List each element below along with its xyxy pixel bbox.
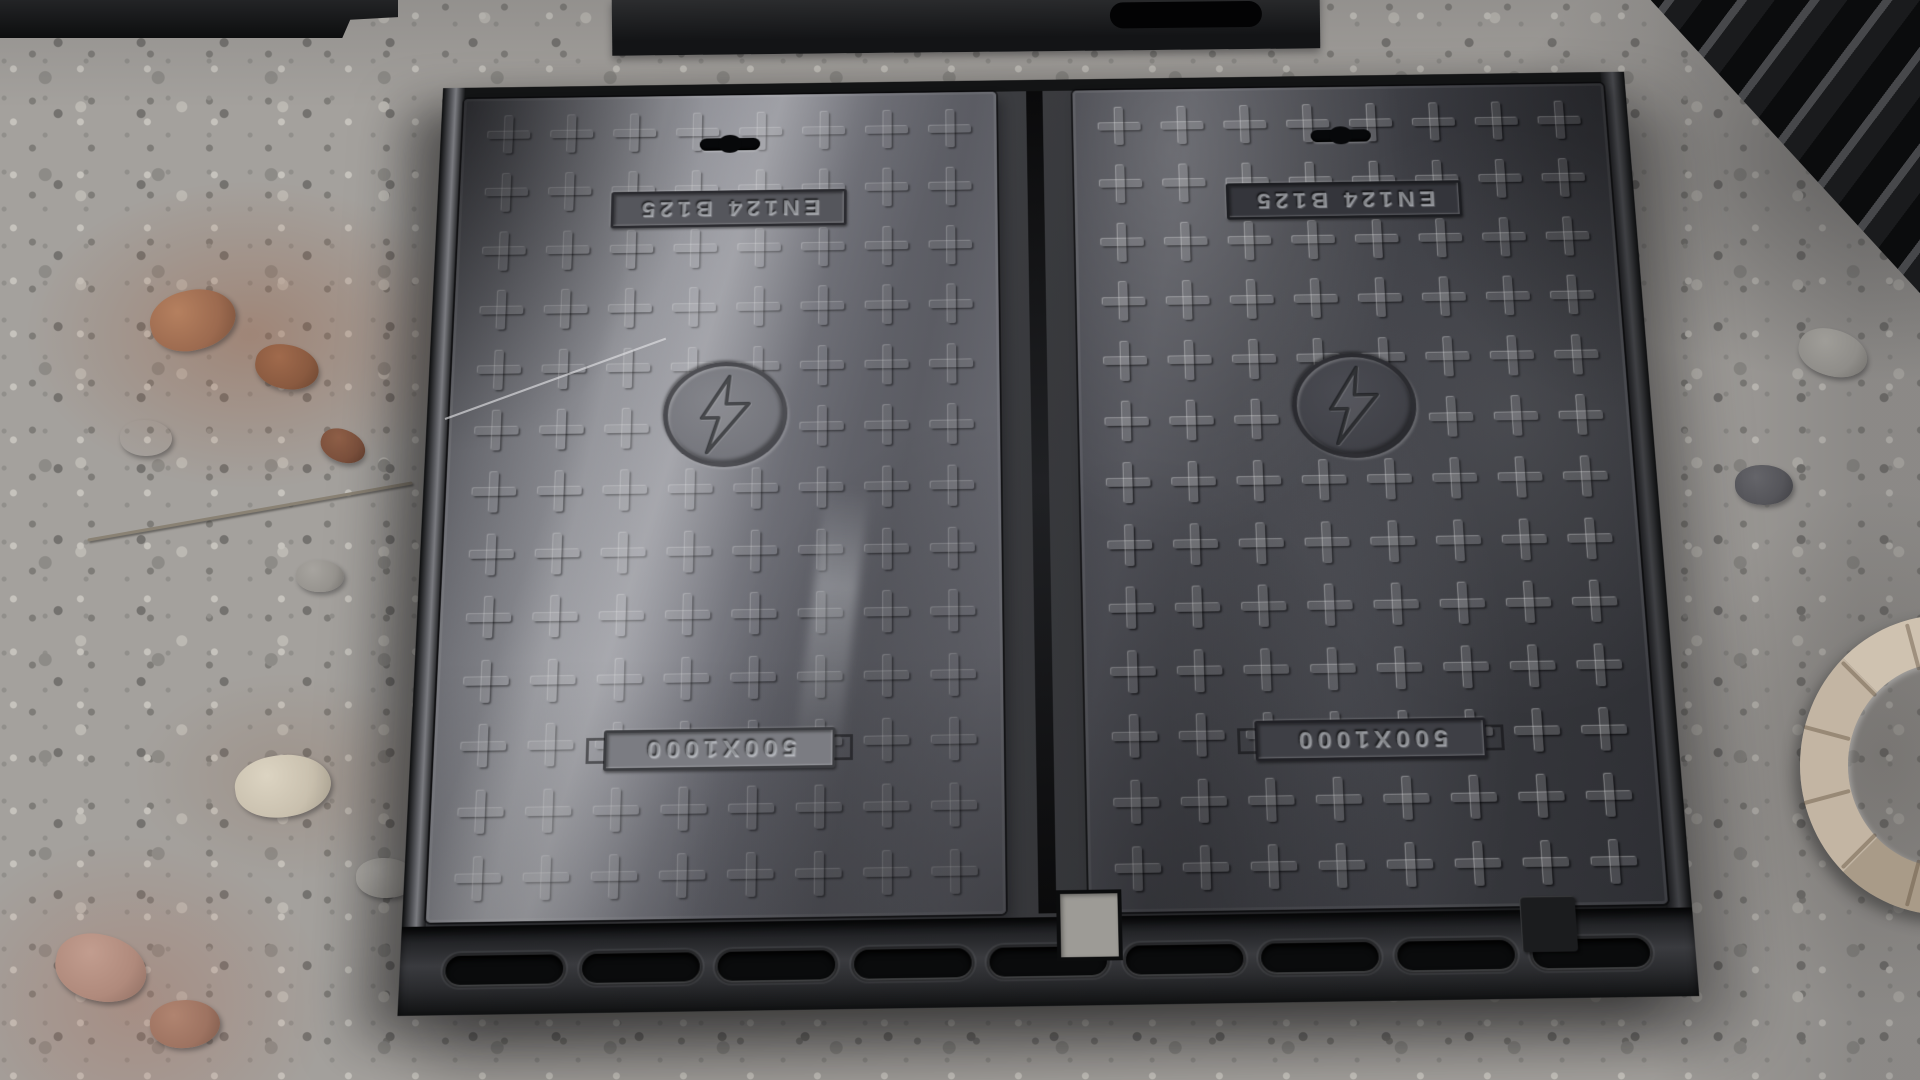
embossed-cross (790, 335, 855, 396)
lightning-bolt-icon (1321, 365, 1387, 445)
embossed-cross (1425, 509, 1495, 572)
embossed-cross (716, 841, 785, 909)
embossed-cross (1160, 451, 1227, 514)
embossed-cross (1365, 636, 1435, 701)
embossed-cross (666, 103, 730, 161)
embossed-cross (921, 772, 989, 839)
embossed-cross (1150, 97, 1215, 155)
embossed-cross (521, 585, 590, 649)
embossed-cross (1479, 325, 1548, 386)
embossed-cross (654, 583, 722, 647)
embossed-cross (919, 274, 984, 334)
embossed-cross (1169, 768, 1239, 835)
embossed-cross (471, 221, 537, 281)
embossed-cross (1217, 211, 1283, 271)
embossed-cross (1152, 154, 1217, 213)
embossed-cross (1418, 386, 1487, 448)
embossed-cross (473, 163, 539, 222)
frame-slot (1125, 944, 1243, 975)
embossed-cross (656, 520, 723, 584)
embossed-cross (1502, 698, 1574, 764)
embossed-cross (1443, 830, 1515, 898)
embossed-cross (595, 338, 661, 399)
manhole-cover-right: EN124 B125 500X1000 (1072, 83, 1668, 912)
embossed-cross (856, 158, 920, 217)
embossed-cross (919, 100, 982, 158)
gray-stone (296, 560, 344, 592)
embossed-cross (856, 101, 919, 159)
embossed-cross (854, 643, 921, 708)
embossed-cross (920, 454, 986, 517)
embossed-cross (1535, 206, 1603, 265)
embossed-cross (1228, 512, 1296, 576)
embossed-cross (1531, 149, 1599, 208)
embossed-cross (854, 580, 921, 644)
embossed-cross (1167, 703, 1236, 769)
embossed-cross (587, 584, 655, 648)
embossed-cross (1486, 446, 1556, 509)
embossed-cross (468, 280, 535, 340)
embossed-cross (855, 216, 919, 276)
embossed-cross (920, 393, 986, 455)
embossed-cross (454, 586, 523, 651)
embossed-cross (445, 779, 516, 846)
embossed-cross (854, 707, 922, 773)
embossed-cross (1307, 832, 1378, 900)
embossed-cross (593, 398, 660, 460)
embossed-cross (663, 219, 728, 279)
embossed-cross (1280, 210, 1346, 270)
embossed-cross (451, 649, 521, 714)
frame-slot (445, 954, 564, 985)
embossed-cross (1574, 762, 1646, 829)
embossed-cross (523, 522, 591, 586)
embossed-cross (448, 713, 518, 779)
embossed-cross (597, 278, 663, 338)
embossed-cross (1464, 92, 1531, 150)
embossed-cross (1166, 639, 1235, 704)
embossed-cross (729, 103, 793, 161)
embossed-cross (581, 777, 651, 844)
embossed-cross (1223, 389, 1290, 451)
embossed-cross (1153, 212, 1219, 272)
frame-slot (581, 952, 699, 983)
embossed-cross (533, 279, 599, 339)
embossed-cross (1239, 833, 1310, 901)
embossed-cross (1157, 330, 1224, 391)
size-plate-text: 500X1000 (1293, 726, 1448, 752)
embossed-cross (1359, 510, 1428, 574)
embossed-cross (717, 775, 786, 842)
embossed-cross (460, 461, 528, 524)
embossed-cross (1221, 329, 1288, 390)
embossed-cross (535, 220, 601, 280)
embossed-cross (589, 521, 657, 585)
embossed-cross (1372, 765, 1443, 832)
embossed-cross (1237, 767, 1307, 834)
lightning-bolt-icon (693, 374, 756, 454)
embossed-cross (1375, 831, 1447, 899)
embossed-cross (1347, 268, 1414, 328)
embossed-cross (723, 457, 789, 520)
hose-ring (1800, 615, 1920, 915)
embossed-cross (457, 523, 526, 587)
embossed-cross (921, 706, 989, 772)
embossed-cross (785, 774, 853, 841)
embossed-cross (920, 516, 986, 580)
embossed-cross (727, 218, 792, 278)
embossed-cross (653, 646, 721, 711)
embossed-cross (855, 275, 919, 335)
embossed-cross (791, 217, 855, 277)
embossed-cross (1296, 573, 1365, 637)
embossed-cross (1304, 766, 1375, 833)
embossed-cross (1338, 94, 1404, 152)
embossed-cross (1578, 828, 1651, 896)
frame-slot (1261, 942, 1380, 973)
size-plate-text: 500X1000 (641, 736, 796, 762)
embossed-cross (662, 277, 728, 337)
embossed-cross (1498, 634, 1569, 699)
embossed-cross (791, 276, 856, 336)
embossed-cross (1551, 445, 1621, 508)
embossed-cross (528, 399, 595, 461)
embossed-cross (921, 838, 990, 906)
embossed-cross (476, 106, 542, 164)
embossed-cross (1283, 269, 1350, 329)
embossed-cross (1356, 448, 1425, 511)
embossed-cross (539, 105, 604, 163)
frame-notch (1056, 889, 1123, 961)
lifting-key-slot (699, 138, 760, 151)
embossed-cross (1094, 391, 1161, 453)
manhole-cover-left: EN124 B125 500X1000 (426, 92, 1006, 923)
embossed-cross (1293, 511, 1362, 575)
embossed-cross (1162, 513, 1230, 577)
embossed-cross (1213, 96, 1278, 154)
embossed-cross (1439, 764, 1511, 831)
embossed-cross (1164, 575, 1232, 639)
embossed-cross (1428, 571, 1498, 635)
embossed-cross (792, 102, 855, 160)
embossed-cross (1095, 452, 1162, 515)
embossed-cross (855, 394, 920, 456)
embossed-cross (1543, 324, 1612, 385)
embossed-cross (1467, 149, 1534, 208)
embossed-cross (1569, 697, 1641, 763)
embossed-cross (1088, 155, 1153, 214)
embossed-cross (1098, 576, 1166, 640)
embossed-cross (1171, 834, 1241, 902)
embossed-cross (1092, 331, 1158, 392)
frame-tab (1519, 896, 1578, 952)
embossed-cross (511, 844, 582, 912)
lifting-slot (1110, 1, 1262, 29)
embossed-cross (1408, 208, 1475, 268)
embossed-cross (526, 460, 594, 523)
embossed-cross (726, 276, 791, 336)
embossed-cross (1511, 829, 1584, 897)
embossed-cross (1506, 763, 1578, 830)
embossed-cross (919, 157, 983, 216)
standard-plate: EN124 B125 (610, 189, 846, 229)
cover-gap (1026, 91, 1056, 913)
embossed-cross (442, 845, 513, 913)
embossed-cross (1547, 384, 1616, 446)
embossed-cross (579, 843, 649, 911)
embossed-cross (649, 776, 718, 843)
embossed-cross (657, 458, 724, 521)
rust-stone (120, 420, 172, 456)
embossed-cross (1158, 390, 1225, 452)
embossed-cross (530, 339, 597, 400)
embossed-cross (1232, 638, 1301, 703)
embossed-cross (1230, 574, 1299, 638)
embossed-cross (1155, 270, 1221, 330)
embossed-cross (648, 842, 718, 910)
embossed-cross (1411, 267, 1479, 327)
embossed-cross (722, 519, 789, 583)
embossed-cross (599, 220, 665, 280)
size-plate: 500X1000 (602, 727, 835, 771)
frame-slot (717, 950, 835, 981)
embossed-cross (603, 104, 668, 162)
embossed-cross (1539, 265, 1608, 325)
dark-stone (1735, 465, 1793, 505)
embossed-cross (1096, 514, 1164, 578)
embossed-cross (1475, 266, 1543, 326)
embossed-cross (516, 712, 586, 778)
size-plate: 500X1000 (1254, 717, 1488, 761)
embossed-cross (853, 773, 921, 840)
embossed-cross (1414, 326, 1482, 387)
embossed-cross (1362, 572, 1432, 636)
embossed-cross (1102, 769, 1171, 836)
embossed-cross (1527, 91, 1594, 149)
embossed-cross (919, 215, 983, 275)
flat-cover-top-left (0, 0, 398, 38)
embossed-cross (1091, 271, 1157, 331)
embossed-cross (1482, 385, 1551, 447)
embossed-cross (1087, 98, 1151, 156)
embossed-cross (1299, 637, 1369, 702)
embossed-cross (921, 642, 988, 707)
embossed-cross (789, 395, 855, 457)
embossed-cross (518, 648, 587, 713)
embossed-cross (1275, 95, 1341, 153)
embossed-cross (1560, 569, 1631, 633)
embossed-cross (591, 459, 658, 522)
embossed-cross (1401, 93, 1467, 151)
manhole-cover-assembly: EN124 B125 500X1000 EN124 B125 (397, 72, 1699, 1016)
standard-plate-text: EN124 B125 (637, 197, 820, 221)
embossed-cross (1100, 704, 1169, 770)
embossed-cross (855, 334, 920, 395)
embossed-cross (513, 778, 583, 845)
embossed-cross (1291, 449, 1359, 512)
embossed-cross (721, 582, 788, 646)
embossed-cross (1225, 450, 1293, 513)
embossed-cross (853, 839, 921, 907)
standard-plate-text: EN124 B125 (1252, 188, 1436, 212)
embossed-cross (920, 333, 985, 394)
embossed-cross (720, 645, 788, 710)
standard-plate: EN124 B125 (1225, 180, 1462, 220)
embossed-cross (1490, 508, 1560, 571)
embossed-cross (1565, 633, 1636, 698)
corrugated-hose (1800, 615, 1920, 915)
frame-slot (854, 948, 972, 979)
embossed-cross (1090, 213, 1155, 273)
flat-cover-top-center (612, 0, 1321, 56)
embossed-cross (1219, 269, 1286, 329)
embossed-cross (785, 840, 854, 908)
embossed-cross (1344, 209, 1411, 269)
photo-scene: EN124 B125 500X1000 EN124 B125 (0, 0, 1920, 1080)
frame-slot (1396, 940, 1515, 971)
embossed-cross (585, 647, 654, 712)
embossed-cross (1099, 640, 1167, 705)
embossed-cross (920, 579, 987, 643)
embossed-cross (1471, 207, 1539, 266)
embossed-cross (1421, 447, 1490, 510)
embossed-cross (1556, 507, 1626, 570)
embossed-cross (537, 162, 603, 221)
embossed-cross (1494, 570, 1565, 634)
lifting-key-slot (1310, 129, 1371, 142)
embossed-cross (1432, 635, 1503, 700)
